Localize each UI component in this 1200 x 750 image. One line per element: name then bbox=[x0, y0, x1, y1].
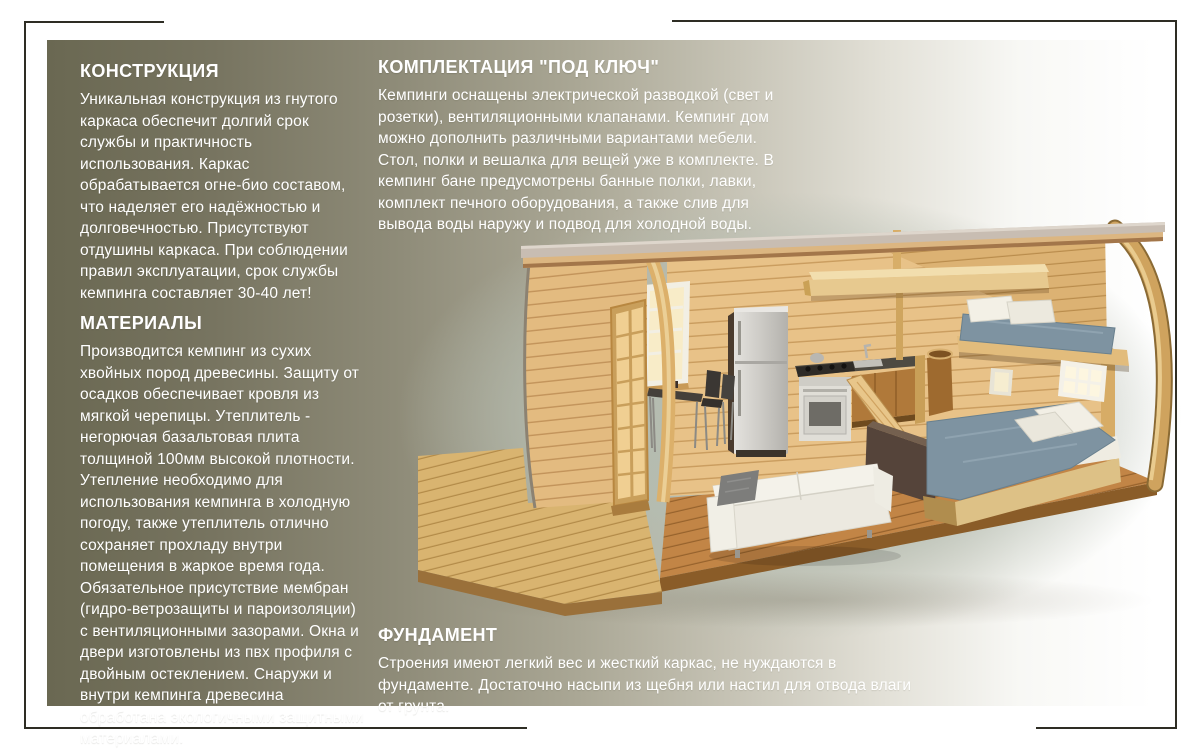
right-window bbox=[1058, 360, 1107, 402]
frame-top-left-line bbox=[24, 21, 164, 23]
frame-top-right-line bbox=[672, 20, 1177, 22]
foundation-body: Строения имеют легкий вес и жесткий карк… bbox=[378, 653, 923, 718]
brochure-page: КОНСТРУКЦИЯ Уникальная конструкция из гн… bbox=[0, 0, 1200, 750]
glazed-door bbox=[611, 300, 650, 516]
fridge bbox=[728, 306, 788, 457]
construction-title: КОНСТРУКЦИЯ bbox=[80, 60, 356, 82]
package-title: КОМПЛЕКТАЦИЯ "ПОД КЛЮЧ" bbox=[378, 56, 798, 78]
construction-body: Уникальная конструкция из гнутого каркас… bbox=[80, 89, 356, 304]
section-materials: МАТЕРИАЛЫ Производится кемпинг из сухих … bbox=[80, 312, 364, 750]
frame-left-line bbox=[24, 21, 26, 729]
section-construction: КОНСТРУКЦИЯ Уникальная конструкция из гн… bbox=[80, 60, 356, 304]
materials-body: Производится кемпинг из сухих хвойных по… bbox=[80, 341, 364, 750]
camping-house-illustration bbox=[415, 200, 1180, 630]
frame-bottom-right-line bbox=[1036, 727, 1177, 729]
section-foundation: ФУНДАМЕНТ Строения имеют легкий вес и же… bbox=[378, 624, 923, 718]
materials-title: МАТЕРИАЛЫ bbox=[80, 312, 364, 334]
sofa bbox=[707, 464, 901, 566]
house-cutaway-svg bbox=[415, 200, 1180, 630]
